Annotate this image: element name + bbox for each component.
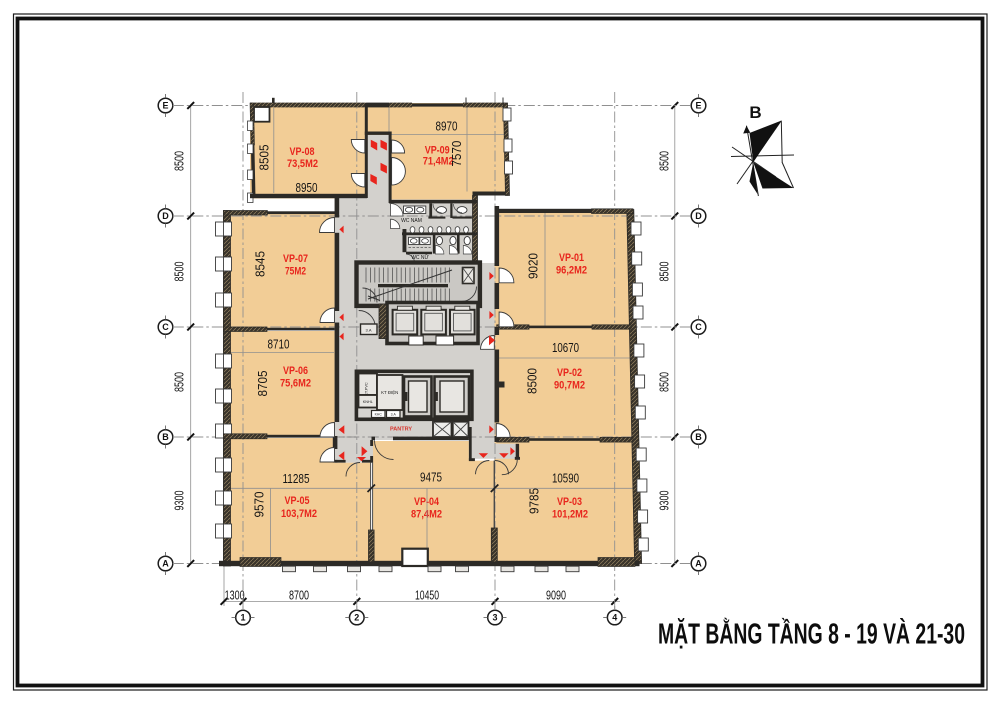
- svg-text:E: E: [162, 101, 168, 111]
- svg-text:8500: 8500: [656, 372, 671, 392]
- svg-text:9020: 9020: [526, 253, 541, 279]
- svg-text:10670: 10670: [552, 340, 579, 355]
- svg-text:8705: 8705: [255, 371, 270, 397]
- svg-text:E: E: [695, 101, 701, 111]
- svg-text:10450: 10450: [415, 588, 439, 603]
- svg-text:VP-03: VP-03: [557, 496, 582, 508]
- svg-text:8500: 8500: [171, 372, 186, 392]
- svg-text:3.A: 3.A: [391, 413, 397, 417]
- svg-text:D: D: [695, 211, 702, 221]
- svg-text:D: D: [162, 211, 169, 221]
- svg-text:8500: 8500: [171, 151, 186, 171]
- svg-text:KT.PVC: KT.PVC: [365, 382, 369, 396]
- svg-text:90,7M2: 90,7M2: [554, 380, 585, 392]
- svg-text:C: C: [162, 322, 169, 332]
- svg-text:3: 3: [492, 613, 497, 623]
- svg-text:A: A: [695, 559, 702, 569]
- svg-text:1300: 1300: [225, 588, 245, 603]
- svg-text:8500: 8500: [656, 151, 671, 171]
- svg-text:A: A: [162, 559, 169, 569]
- svg-text:7570: 7570: [449, 141, 464, 167]
- svg-text:11285: 11285: [283, 471, 310, 486]
- svg-text:8500: 8500: [656, 262, 671, 282]
- svg-text:8545: 8545: [253, 251, 268, 277]
- svg-text:8500: 8500: [525, 368, 540, 394]
- svg-text:75,6M2: 75,6M2: [280, 378, 311, 390]
- svg-text:WC NAM: WC NAM: [401, 218, 422, 224]
- svg-text:KNHL: KNHL: [363, 400, 373, 404]
- svg-text:8950: 8950: [296, 180, 318, 195]
- svg-text:9785: 9785: [527, 488, 542, 514]
- svg-text:10590: 10590: [552, 471, 579, 486]
- svg-text:96,2M2: 96,2M2: [556, 265, 587, 277]
- svg-text:1: 1: [240, 613, 245, 623]
- svg-text:MẶT BẰNG TẦNG 8 - 19 VÀ 21-30: MẶT BẰNG TẦNG 8 - 19 VÀ 21-30: [658, 617, 965, 651]
- svg-text:2: 2: [354, 613, 359, 623]
- svg-text:103,7M2: 103,7M2: [281, 508, 317, 520]
- svg-text:WC NỮ: WC NỮ: [411, 254, 429, 261]
- svg-text:VP-08: VP-08: [290, 146, 315, 158]
- svg-text:73,5M2: 73,5M2: [287, 158, 318, 170]
- svg-text:VP-06: VP-06: [283, 365, 308, 377]
- svg-text:101,2M2: 101,2M2: [552, 509, 588, 521]
- svg-text:75M2: 75M2: [285, 266, 306, 278]
- svg-text:9475: 9475: [420, 470, 442, 485]
- svg-text:9570: 9570: [252, 492, 267, 518]
- svg-text:87,4M2: 87,4M2: [411, 509, 442, 521]
- svg-text:8970: 8970: [436, 119, 458, 134]
- svg-text:C: C: [695, 322, 702, 332]
- svg-text:8505: 8505: [257, 145, 272, 171]
- svg-text:8710: 8710: [268, 337, 290, 352]
- svg-text:VP-01: VP-01: [559, 252, 584, 264]
- svg-text:B: B: [749, 103, 761, 122]
- svg-text:B: B: [162, 432, 169, 442]
- svg-text:4: 4: [612, 613, 617, 623]
- svg-text:8700: 8700: [289, 588, 309, 603]
- svg-text:9300: 9300: [171, 491, 186, 511]
- svg-text:9300: 9300: [656, 491, 671, 511]
- svg-text:9090: 9090: [546, 588, 566, 603]
- svg-text:3.A: 3.A: [365, 328, 371, 333]
- svg-text:VP-02: VP-02: [557, 367, 582, 379]
- svg-text:PANTRY: PANTRY: [390, 427, 412, 433]
- svg-text:8500: 8500: [171, 262, 186, 282]
- svg-text:KT ĐIỆN: KT ĐIỆN: [381, 390, 398, 395]
- svg-text:VP-07: VP-07: [283, 253, 308, 265]
- svg-text:KHC: KHC: [375, 413, 383, 417]
- svg-text:VP-05: VP-05: [285, 495, 310, 507]
- svg-text:B: B: [695, 432, 702, 442]
